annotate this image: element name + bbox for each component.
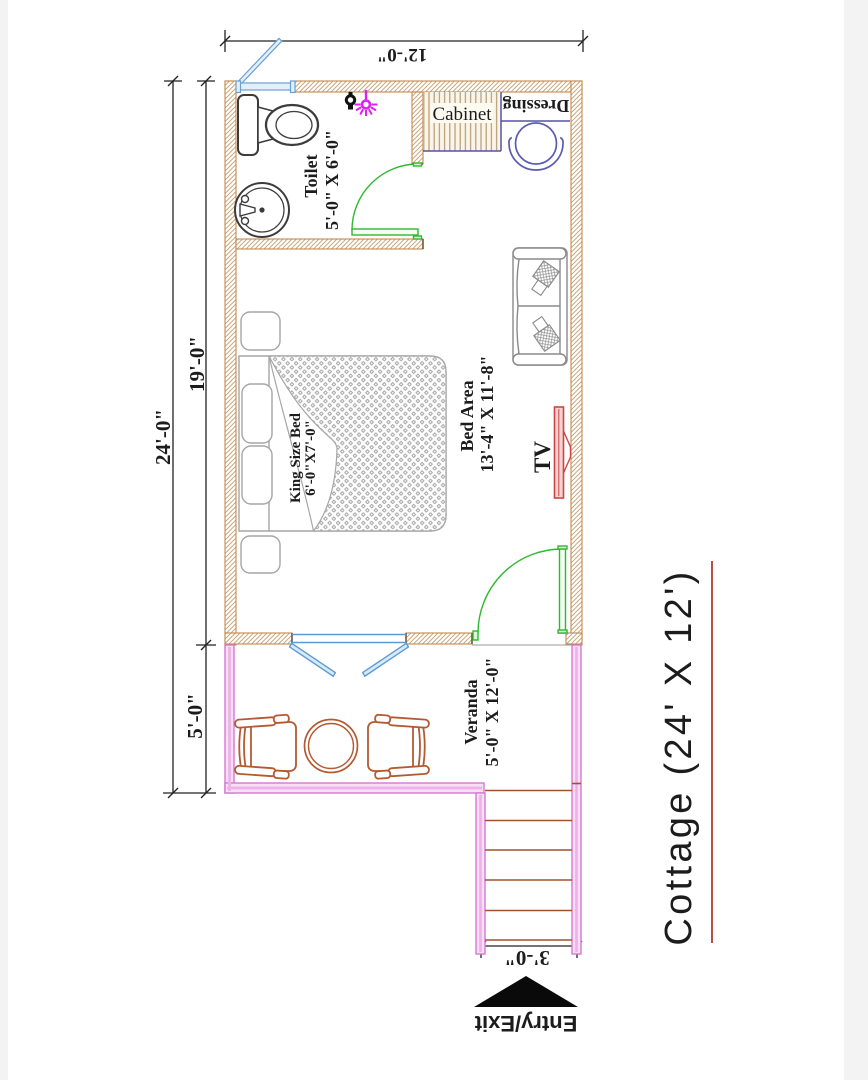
svg-text:5'-0" X 12'-0": 5'-0" X 12'-0" (482, 658, 502, 767)
svg-text:5'-0" X 6'-0": 5'-0" X 6'-0" (322, 130, 342, 230)
svg-text:Toilet: Toilet (301, 154, 321, 197)
svg-text:3'-0": 3'-0" (504, 946, 550, 970)
svg-text:TV: TV (530, 441, 555, 473)
svg-text:13'-4" X 11'-8": 13'-4" X 11'-8" (477, 356, 497, 473)
svg-text:24'-0": 24'-0" (151, 409, 175, 465)
svg-text:19'-0": 19'-0" (185, 336, 209, 392)
svg-text:Cabinet: Cabinet (432, 104, 492, 125)
svg-text:Entry/Exit: Entry/Exit (474, 1011, 577, 1036)
svg-text:6'-0"X7'-0": 6'-0"X7'-0" (303, 420, 319, 496)
svg-text:King Size Bed: King Size Bed (288, 412, 304, 503)
svg-text:Cottage (24' X 12'): Cottage (24' X 12') (658, 568, 700, 945)
svg-text:Dressing: Dressing (503, 96, 570, 116)
svg-text:5'-0": 5'-0" (183, 693, 207, 739)
svg-text:Bed Area: Bed Area (457, 380, 477, 451)
svg-text:Veranda: Veranda (461, 679, 481, 744)
svg-text:12'-0": 12'-0" (377, 44, 428, 65)
